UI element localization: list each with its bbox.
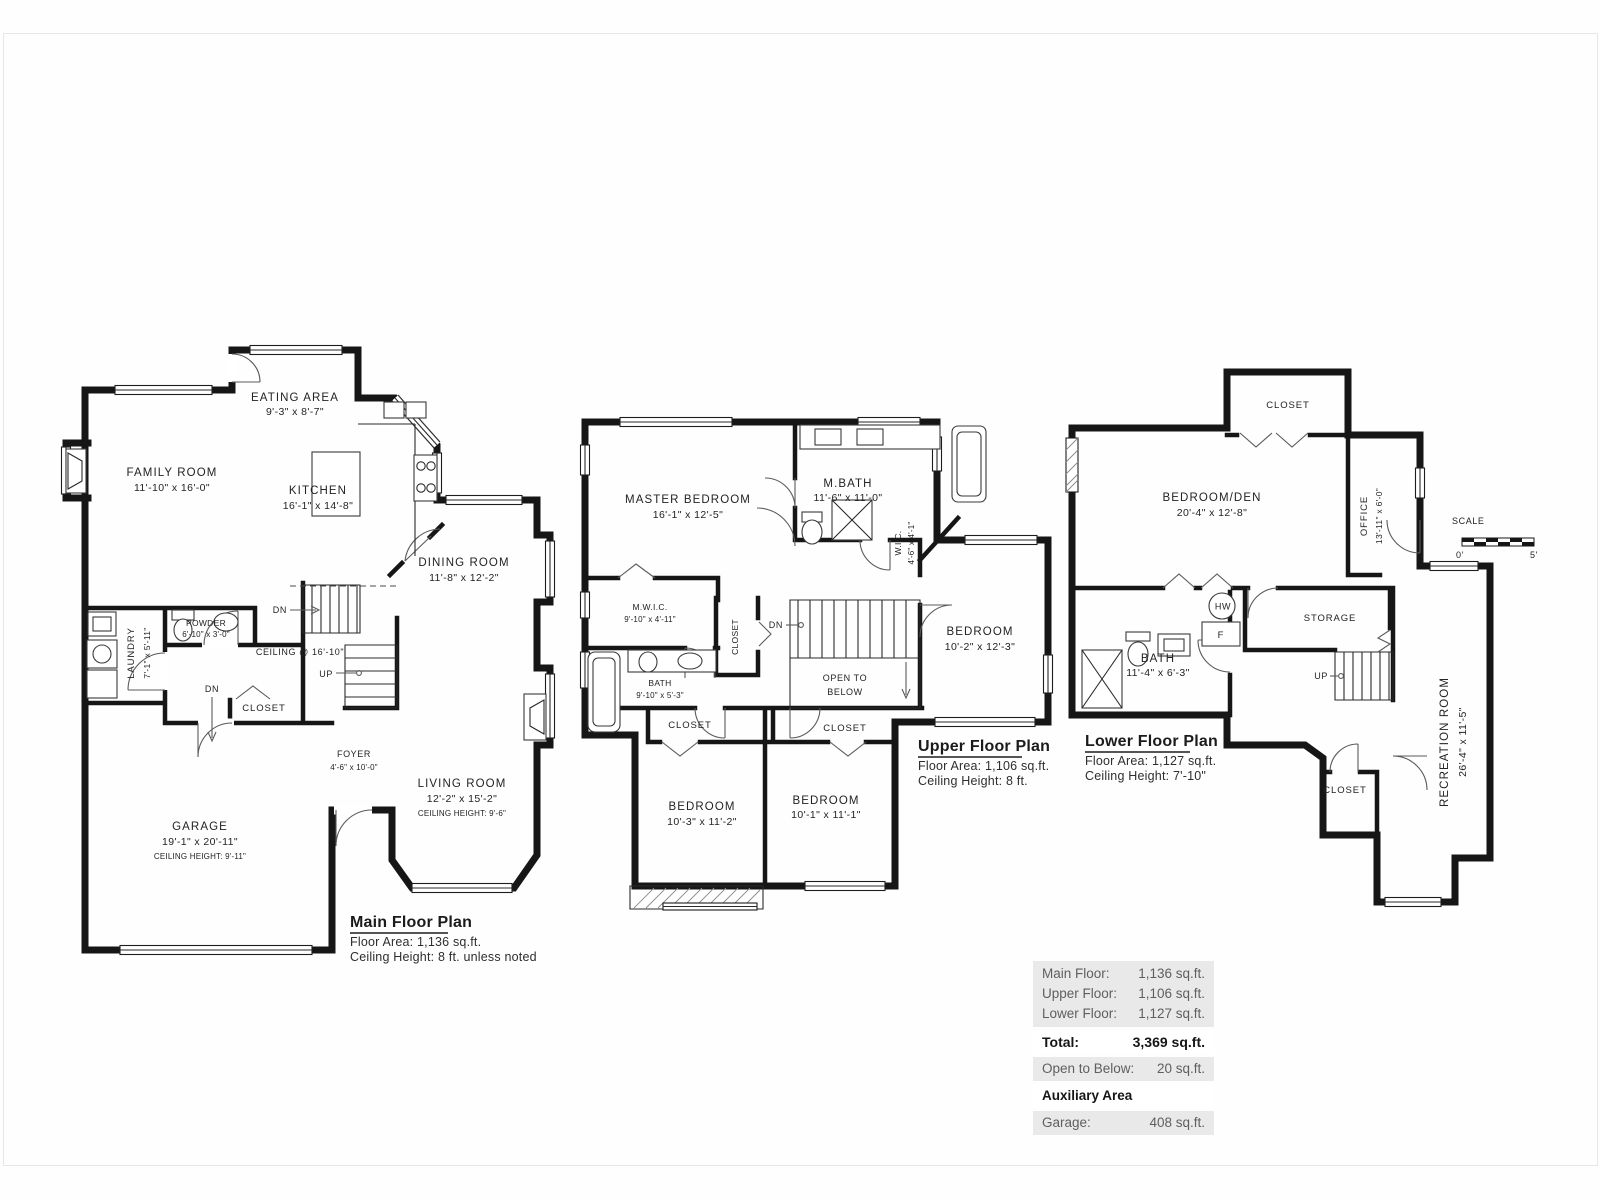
room-label-dining-room: DINING ROOM bbox=[418, 557, 509, 569]
room-label-mwic: M.W.I.C. bbox=[633, 602, 668, 612]
room-dims-eating-area: 9'-3" x 8'-7" bbox=[266, 406, 324, 418]
scale-bar: SCALE 0' 5' bbox=[1452, 516, 1538, 560]
room-dims-powder: 6'-10" x 3'-0" bbox=[182, 630, 230, 639]
lower-plan-title: Lower Floor Plan bbox=[1085, 733, 1218, 750]
room-label-hall-closet: CLOSET bbox=[730, 619, 740, 655]
room-dims-office: 13'-11" x 6'-0" bbox=[1374, 488, 1384, 544]
room-label-bedroom-se: BEDROOM bbox=[792, 795, 859, 807]
upper-plan-title: Upper Floor Plan bbox=[918, 738, 1050, 755]
room-label-laundry: LAUNDRY bbox=[126, 627, 137, 679]
room-label-kitchen: KITCHEN bbox=[289, 485, 347, 497]
room-dims-wic: 4'-6" x 4'-1" bbox=[907, 522, 916, 565]
ceiling-note: CEILING @ 16'-10" bbox=[256, 647, 344, 657]
furnace-label: F bbox=[1218, 630, 1225, 641]
summary-label: Main Floor: bbox=[1042, 965, 1110, 983]
summary-value: 1,106 sq.ft. bbox=[1138, 985, 1205, 1003]
floorplan-canvas: EATING AREA 9'-3" x 8'-7" FAMILY ROOM 11… bbox=[0, 0, 1600, 1200]
room-label-master-bedroom: MASTER BEDROOM bbox=[625, 494, 751, 506]
room-label-garage: GARAGE bbox=[172, 821, 228, 833]
room-dims-mwic: 9'-10" x 4'-11" bbox=[624, 615, 676, 624]
summary-row-open-to-below: Open to Below: 20 sq.ft. bbox=[1033, 1057, 1214, 1081]
summary-value: 1,127 sq.ft. bbox=[1138, 1005, 1205, 1023]
lower-floor-plan: CLOSET BEDROOM/DEN 20'-4" x 12'-8" OFFIC… bbox=[1066, 372, 1490, 907]
summary-value: 1,136 sq.ft. bbox=[1138, 965, 1205, 983]
room-label-closet-r: CLOSET bbox=[823, 723, 866, 734]
garage-dn-label: DN bbox=[205, 684, 219, 694]
main-floor-plan: EATING AREA 9'-3" x 8'-7" FAMILY ROOM 11… bbox=[62, 346, 555, 965]
stairs-up-label: UP bbox=[319, 669, 333, 679]
upper-dn-label: DN bbox=[769, 620, 783, 630]
main-plan-area: Floor Area: 1,136 sq.ft. bbox=[350, 935, 481, 949]
upper-plan-area: Floor Area: 1,106 sq.ft. bbox=[918, 759, 1049, 773]
room-label-closet-bottom: CLOSET bbox=[1323, 785, 1366, 796]
room-dims-bedroom-e: 10'-2" x 12'-3" bbox=[945, 641, 1016, 653]
scale-five: 5' bbox=[1530, 550, 1538, 560]
summary-label: Open to Below: bbox=[1042, 1060, 1134, 1078]
room-dims-living-room: 12'-2" x 15'-2" bbox=[427, 793, 498, 805]
room-dims-bedroom-den: 20'-4" x 12'-8" bbox=[1177, 507, 1248, 519]
summary-value: 408 sq.ft. bbox=[1149, 1114, 1205, 1132]
summary-row-main-floor: Main Floor: 1,136 sq.ft. bbox=[1033, 964, 1214, 984]
floor-areas-block: Main Floor: 1,136 sq.ft. Upper Floor: 1,… bbox=[1033, 961, 1214, 1027]
main-plan-title: Main Floor Plan bbox=[350, 914, 472, 931]
floorplan-page: EATING AREA 9'-3" x 8'-7" FAMILY ROOM 11… bbox=[0, 0, 1600, 1200]
room-dims-recreation: 26'-4" x 11'-5" bbox=[1457, 707, 1469, 777]
area-summary-table: Main Floor: 1,136 sq.ft. Upper Floor: 1,… bbox=[1033, 961, 1214, 1138]
room-label-lower-bath: BATH bbox=[1141, 653, 1175, 665]
room-dims-bedroom-sw: 10'-3" x 11'-2" bbox=[667, 816, 737, 828]
main-interior-walls bbox=[85, 525, 442, 723]
summary-row-total: Total: 3,369 sq.ft. bbox=[1033, 1030, 1214, 1054]
scale-zero: 0' bbox=[1456, 550, 1464, 560]
room-dims-bedroom-se: 10'-1" x 11'-1" bbox=[791, 809, 861, 821]
room-dims-lower-bath: 11'-4" x 6'-3" bbox=[1126, 667, 1190, 679]
stairs-dn-label: DN bbox=[273, 605, 287, 615]
main-doors bbox=[128, 354, 440, 846]
room-label-living-room: LIVING ROOM bbox=[418, 778, 507, 790]
room-label-closet-l: CLOSET bbox=[668, 720, 711, 731]
room-label-wic: W.I.C. bbox=[893, 531, 903, 556]
summary-row-upper-floor: Upper Floor: 1,106 sq.ft. bbox=[1033, 984, 1214, 1004]
room-label-closet-top: CLOSET bbox=[1266, 400, 1309, 411]
room-dims-bath: 9'-10" x 5'-3" bbox=[636, 691, 684, 700]
room-label-bedroom-e: BEDROOM bbox=[946, 626, 1013, 638]
lower-plan-ceiling: Ceiling Height: 7'-10" bbox=[1085, 769, 1206, 783]
lower-windows bbox=[1385, 468, 1478, 907]
main-plan-ceiling: Ceiling Height: 8 ft. unless noted bbox=[350, 950, 537, 964]
room-label-foyer: FOYER bbox=[337, 749, 371, 759]
room-dims-laundry: 7'-1" x 5'-11" bbox=[142, 627, 152, 678]
summary-label: Lower Floor: bbox=[1042, 1005, 1117, 1023]
room-dims-garage: 19'-1" x 20'-11" bbox=[162, 836, 238, 848]
upper-floor-plan: MASTER BEDROOM 16'-1" x 12'-5" M.BATH 11… bbox=[581, 418, 1053, 911]
room-dims-kitchen: 16'-1" x 14'-8" bbox=[283, 500, 354, 512]
room-label-bedroom-sw: BEDROOM bbox=[668, 801, 735, 813]
room-label-mbath: M.BATH bbox=[823, 478, 872, 490]
summary-value: 20 sq.ft. bbox=[1157, 1060, 1205, 1078]
hw-label: HW bbox=[1215, 602, 1231, 612]
room-ceiling-living-room: CEILING HEIGHT: 9'-6" bbox=[418, 809, 506, 818]
room-label-bedroom-den: BEDROOM/DEN bbox=[1163, 492, 1262, 504]
room-dims-mbath: 11'-6" x 11'-0" bbox=[813, 492, 882, 504]
summary-auxiliary-header: Auxiliary Area bbox=[1033, 1084, 1214, 1108]
room-dims-dining-room: 11'-8" x 12'-2" bbox=[429, 572, 499, 584]
room-label-recreation: RECREATION ROOM bbox=[1439, 677, 1451, 807]
summary-label: Auxiliary Area bbox=[1042, 1087, 1132, 1105]
room-dims-family-room: 11'-10" x 16'-0" bbox=[134, 482, 210, 494]
upper-plan-ceiling: Ceiling Height: 8 ft. bbox=[918, 774, 1028, 788]
lower-up-label: UP bbox=[1314, 671, 1328, 681]
room-label-bath: BATH bbox=[648, 678, 671, 688]
scale-label: SCALE bbox=[1452, 516, 1485, 526]
open-to-below-line2: BELOW bbox=[827, 687, 863, 697]
family-fireplace bbox=[66, 449, 86, 493]
main-fixtures bbox=[66, 402, 546, 740]
room-ceiling-garage: CEILING HEIGHT: 9'-11" bbox=[154, 852, 246, 861]
summary-row-garage: Garage: 408 sq.ft. bbox=[1033, 1111, 1214, 1135]
open-to-below-line1: OPEN TO bbox=[823, 673, 867, 683]
room-label-office: OFFICE bbox=[1359, 496, 1370, 536]
summary-value: 3,369 sq.ft. bbox=[1133, 1033, 1205, 1051]
stove bbox=[414, 455, 437, 501]
summary-row-lower-floor: Lower Floor: 1,127 sq.ft. bbox=[1033, 1004, 1214, 1024]
room-label-family-room: FAMILY ROOM bbox=[127, 467, 218, 479]
summary-label: Garage: bbox=[1042, 1114, 1091, 1132]
summary-label: Upper Floor: bbox=[1042, 985, 1117, 1003]
room-label-entry-closet: CLOSET bbox=[242, 703, 285, 714]
room-label-storage: STORAGE bbox=[1304, 613, 1357, 624]
room-dims-master-bedroom: 16'-1" x 12'-5" bbox=[653, 509, 724, 521]
room-dims-foyer: 4'-6" x 10'-0" bbox=[330, 763, 378, 772]
room-label-powder: POWDER bbox=[186, 618, 226, 628]
summary-label: Total: bbox=[1042, 1033, 1079, 1051]
lower-plan-area: Floor Area: 1,127 sq.ft. bbox=[1085, 754, 1216, 768]
room-label-eating-area: EATING AREA bbox=[251, 392, 339, 404]
